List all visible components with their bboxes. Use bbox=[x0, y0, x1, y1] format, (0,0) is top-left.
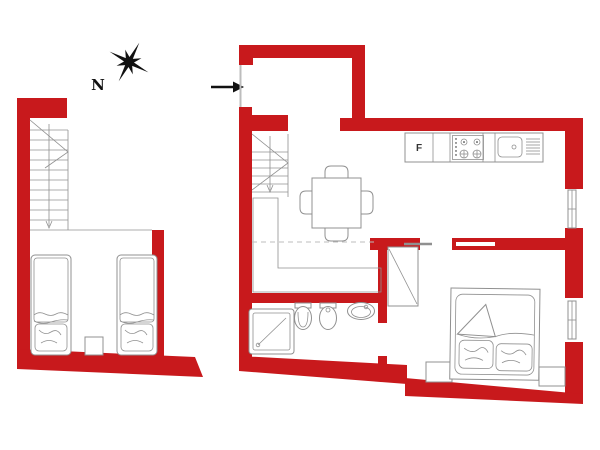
compass-north-label: N bbox=[91, 76, 105, 94]
floorplan-drawing: N bbox=[0, 0, 600, 450]
right-unit: F bbox=[239, 45, 583, 404]
wall-right-unit-top bbox=[340, 118, 583, 131]
wall-bathroom-top bbox=[239, 293, 385, 303]
wall-right-unit-right-a bbox=[565, 118, 583, 189]
shower-icon bbox=[249, 309, 294, 354]
floorplan-canvas: N bbox=[0, 0, 600, 450]
entrance-arrow-icon bbox=[211, 82, 244, 93]
staircase-left-unit bbox=[30, 120, 68, 230]
chair-right bbox=[361, 191, 373, 214]
wall-right-unit-right-c bbox=[565, 342, 583, 400]
single-bed-left bbox=[31, 255, 71, 355]
fridge-label: F bbox=[416, 143, 422, 154]
washbasin-icon bbox=[348, 303, 375, 320]
wardrobe-icon bbox=[388, 247, 418, 306]
left-unit bbox=[17, 98, 203, 377]
bedroom bbox=[388, 247, 565, 386]
chair-top bbox=[325, 166, 348, 178]
dining-table bbox=[312, 178, 361, 228]
chair-left bbox=[300, 191, 312, 214]
nightstand-right bbox=[539, 367, 565, 386]
toilet-icon bbox=[295, 303, 312, 330]
wall-vestibule-top bbox=[239, 45, 365, 58]
nightstand bbox=[85, 337, 103, 355]
double-bed bbox=[450, 288, 540, 380]
wall-door-jamb bbox=[378, 356, 387, 365]
kitchen-counter: F bbox=[405, 133, 543, 162]
bidet-icon bbox=[320, 303, 337, 330]
wall-bedroom-left bbox=[378, 238, 387, 323]
chair-bottom bbox=[325, 228, 348, 241]
wall-left-unit-left bbox=[17, 98, 30, 369]
pocket-door-cavity bbox=[456, 242, 495, 246]
nightstand-left bbox=[426, 362, 452, 382]
window-living bbox=[568, 190, 576, 228]
wall-top-stub bbox=[252, 115, 288, 131]
compass-rose-icon: N bbox=[91, 32, 159, 94]
dining-table-group bbox=[300, 166, 373, 241]
wall-vestibule-left-stub bbox=[239, 45, 253, 65]
window-bedroom bbox=[568, 301, 576, 339]
single-bed-right bbox=[117, 255, 157, 355]
staircase-right-unit bbox=[252, 134, 288, 197]
wall-bedroom-top-right bbox=[498, 238, 583, 250]
bathroom bbox=[249, 303, 375, 355]
